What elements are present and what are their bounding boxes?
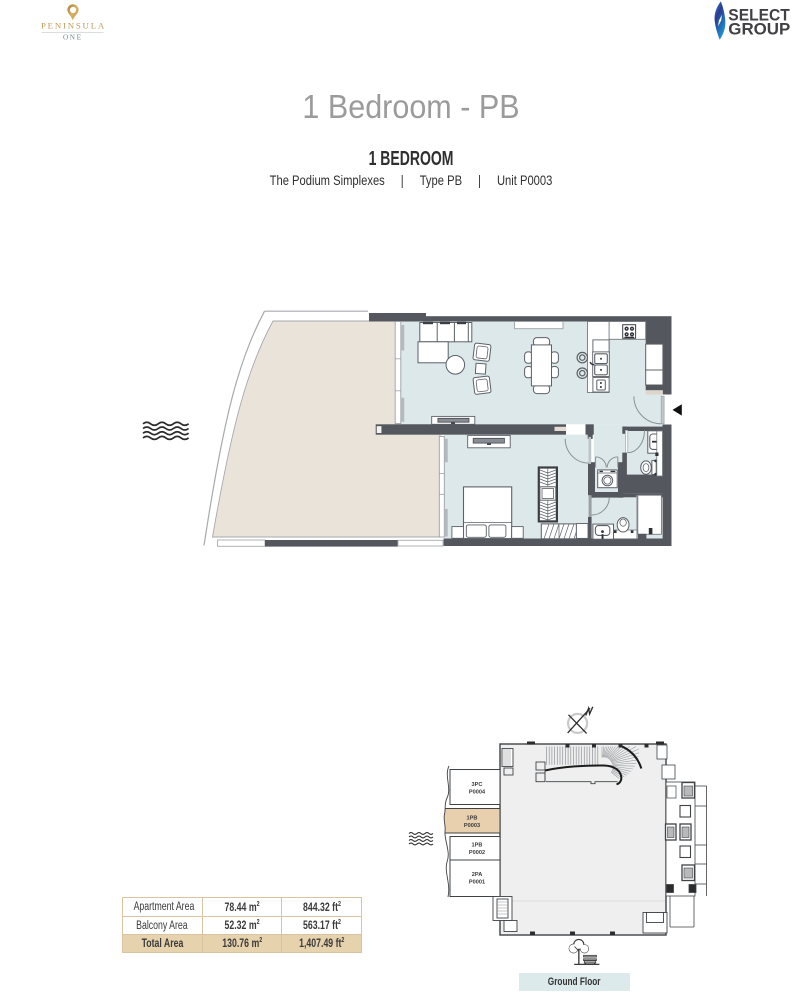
svg-text:3PC: 3PC — [472, 782, 483, 788]
svg-text:P0003: P0003 — [464, 823, 480, 829]
svg-text:1PB: 1PB — [467, 816, 478, 822]
svg-text:P0001: P0001 — [469, 880, 485, 886]
svg-text:P0004: P0004 — [469, 790, 486, 796]
svg-text:P0002: P0002 — [469, 850, 485, 856]
svg-text:1PB: 1PB — [472, 843, 483, 849]
svg-text:2PA: 2PA — [472, 872, 482, 878]
